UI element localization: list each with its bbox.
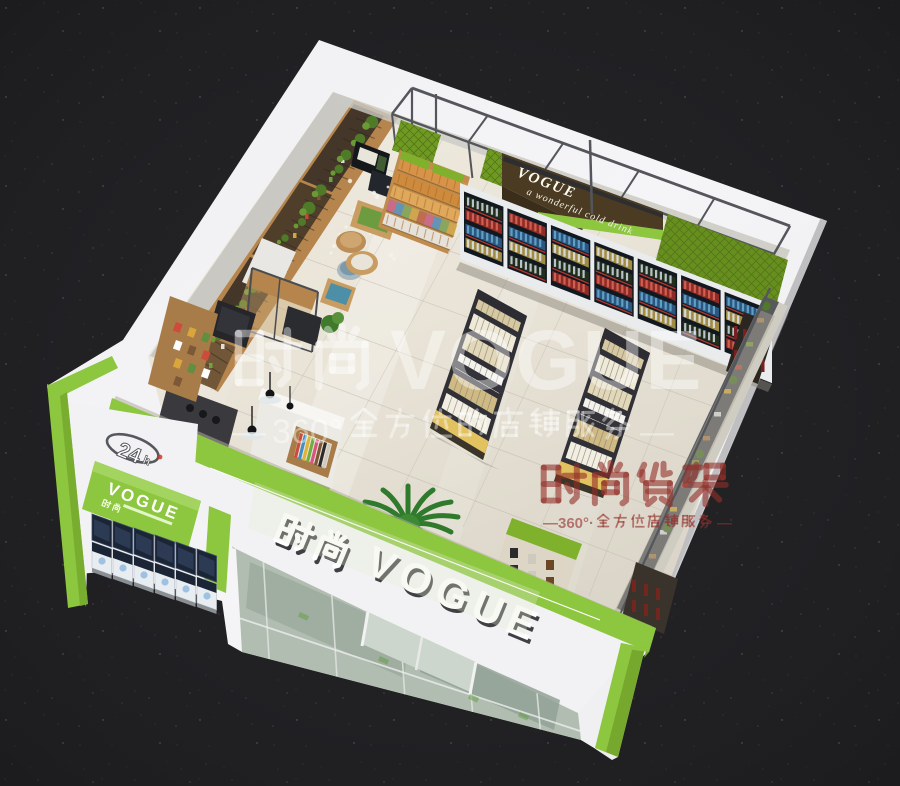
svg-text:360°: 360° [272,413,342,451]
svg-text:—: — [543,515,558,532]
svg-text:—: — [232,413,266,451]
svg-text:VOGUE: VOGUE [390,313,703,407]
svg-text:360°·: 360°· [558,515,594,532]
svg-text:—: — [717,515,732,532]
svg-text:—: — [640,413,674,451]
